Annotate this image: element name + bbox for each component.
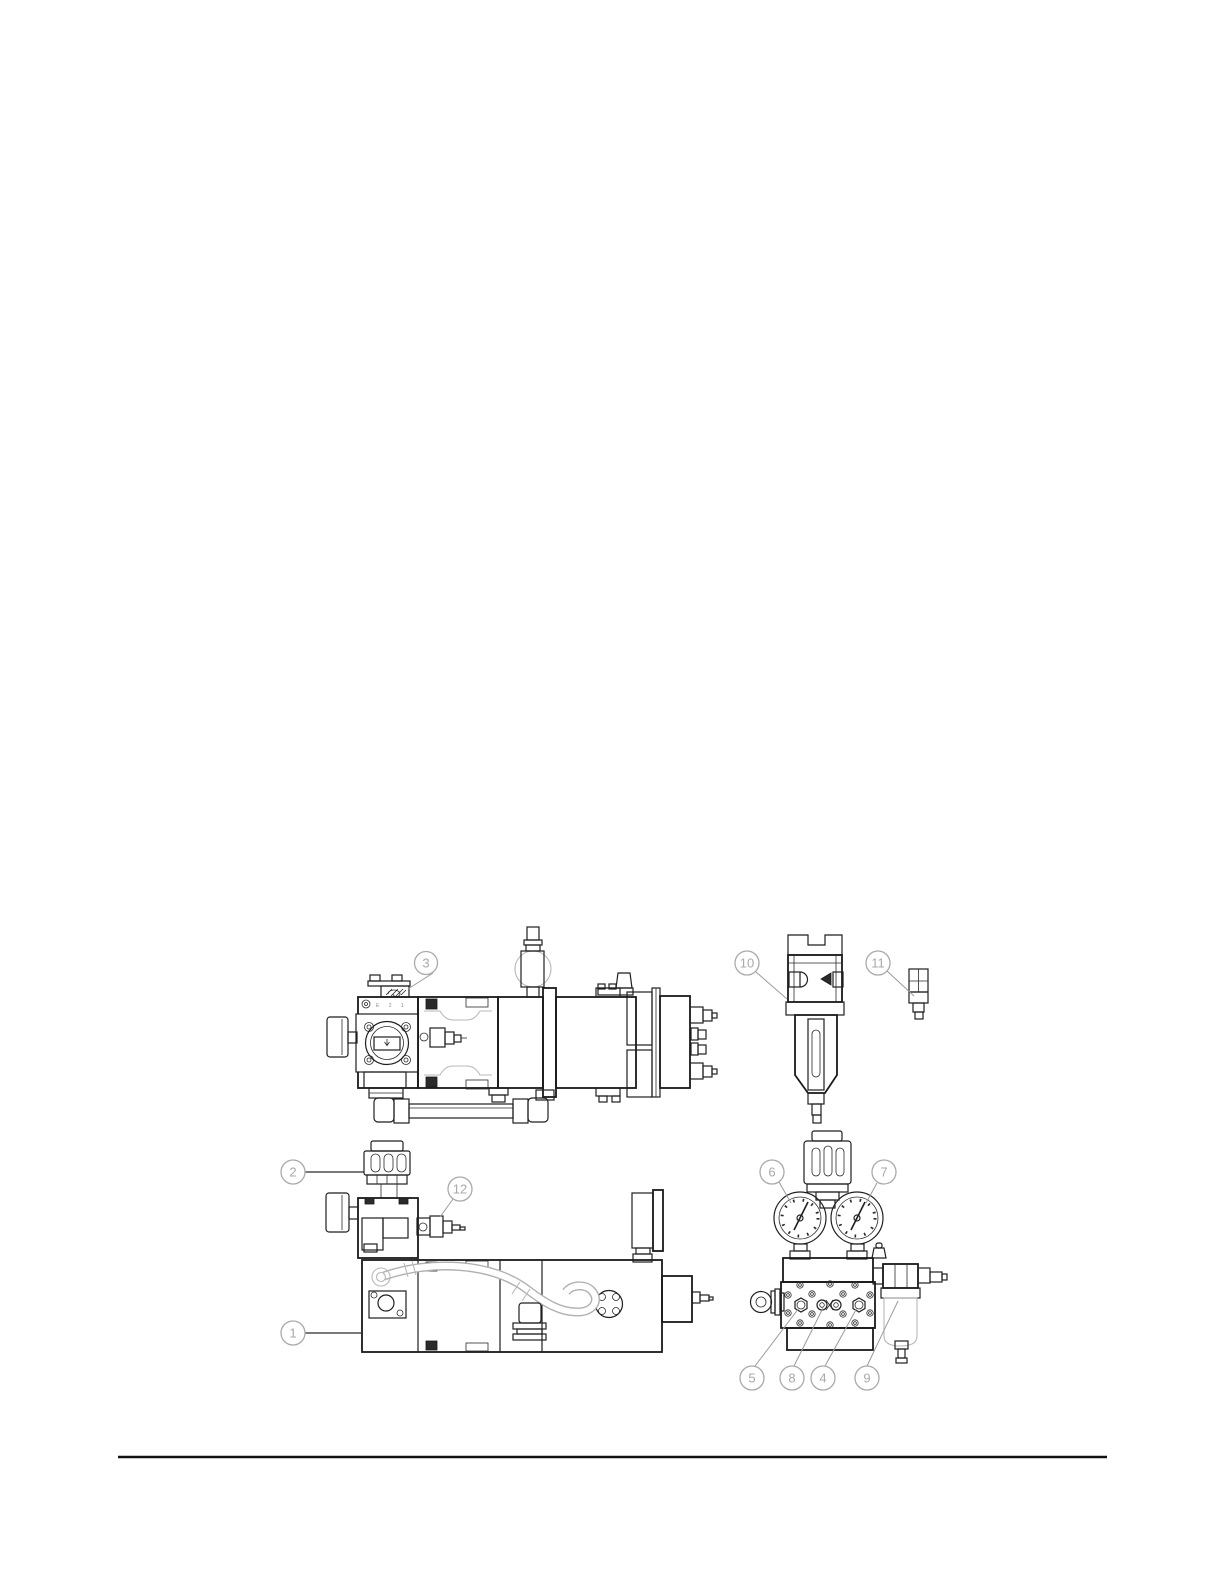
callout-1: 1 bbox=[281, 1321, 362, 1345]
filter-head bbox=[788, 955, 842, 1002]
pump-center-body bbox=[418, 997, 498, 1089]
fitting-item-11: 11 bbox=[866, 951, 928, 1019]
callout-9-label: 9 bbox=[863, 1371, 870, 1386]
pump-main-body bbox=[362, 1260, 713, 1352]
sight-window bbox=[812, 1030, 820, 1077]
fitting-item-12 bbox=[417, 1216, 465, 1237]
pressure-gauge-right bbox=[831, 1192, 883, 1259]
side-knob bbox=[327, 1017, 348, 1057]
eye-fitting bbox=[751, 1292, 772, 1313]
air-valve-block: E 2 1 bbox=[327, 997, 418, 1098]
regulator-knob bbox=[364, 1141, 410, 1198]
gauge-edge-view bbox=[632, 1190, 663, 1262]
pump-assembly-top-view: E 2 1 bbox=[327, 927, 717, 1123]
callout-12-label: 12 bbox=[453, 1182, 467, 1197]
port-labels: E 2 1 bbox=[376, 1003, 408, 1009]
callout-11: 11 bbox=[866, 951, 914, 996]
callout-2-label: 2 bbox=[289, 1165, 296, 1180]
air-filter: 10 bbox=[735, 935, 844, 1123]
callout-11-label: 11 bbox=[871, 956, 885, 971]
air-motor-section bbox=[489, 973, 717, 1102]
top-fitting bbox=[616, 973, 632, 988]
callout-3-label: 3 bbox=[422, 956, 429, 971]
callout-5-label: 5 bbox=[748, 1371, 755, 1386]
gauge-needle bbox=[851, 1202, 865, 1230]
filter-bowl bbox=[795, 1015, 837, 1093]
front-port bbox=[420, 1033, 428, 1041]
callout-2: 2 bbox=[281, 1160, 364, 1184]
callout-7-label: 7 bbox=[880, 1165, 887, 1180]
recirculation-pipe bbox=[374, 1090, 554, 1123]
elbow-fitting bbox=[519, 1303, 541, 1323]
top-valve-stem bbox=[527, 927, 539, 940]
gauge-needle bbox=[794, 1202, 808, 1230]
callout-1-label: 1 bbox=[289, 1326, 296, 1341]
air-control-manifold: 6 7 5 8 4 9 bbox=[740, 1131, 947, 1390]
top-valve-body bbox=[521, 951, 544, 987]
callout-12: 12 bbox=[440, 1177, 472, 1217]
muffler bbox=[368, 975, 410, 997]
center-fitting-a bbox=[817, 1300, 827, 1310]
lubricator-bowl bbox=[884, 1298, 917, 1346]
regulator-block bbox=[326, 1193, 418, 1258]
callout-4: 4 bbox=[811, 1308, 857, 1390]
lubricator bbox=[881, 1264, 947, 1363]
callout-10-label: 10 bbox=[740, 956, 754, 971]
callout-7: 7 bbox=[866, 1160, 896, 1203]
regulator-side-knob bbox=[326, 1193, 349, 1232]
callout-8-label: 8 bbox=[788, 1371, 795, 1386]
callout-3: 3 bbox=[408, 952, 438, 990]
callout-6-label: 6 bbox=[768, 1165, 775, 1180]
callout-10: 10 bbox=[735, 951, 787, 999]
drain-tip bbox=[813, 1115, 821, 1123]
manifold-regulator-knob bbox=[804, 1131, 851, 1208]
parts-diagram: E 2 1 bbox=[0, 0, 1225, 1585]
pump-assembly-front-view: 2 12 1 bbox=[281, 1141, 713, 1352]
pressure-gauge-left bbox=[774, 1192, 826, 1259]
drawing-page: E 2 1 bbox=[0, 0, 1225, 1585]
callout-4-label: 4 bbox=[819, 1371, 826, 1386]
center-fitting-b bbox=[831, 1300, 841, 1310]
